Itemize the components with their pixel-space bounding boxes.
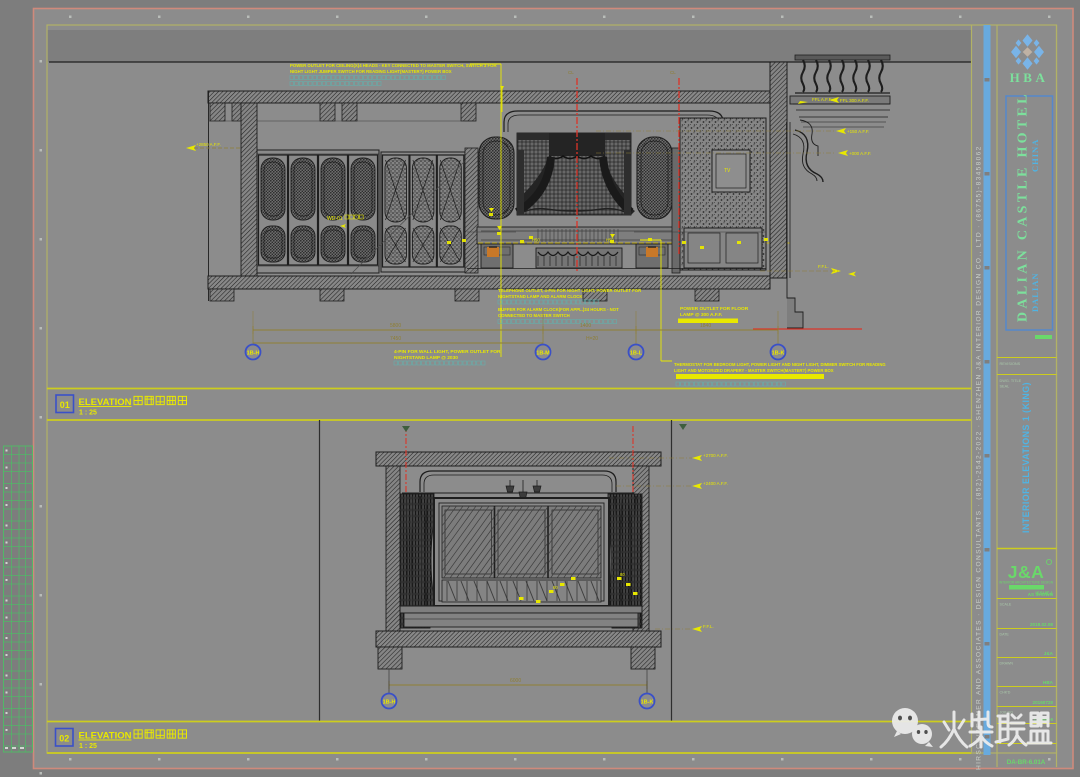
svg-text:REVISIONS: REVISIONS bbox=[1000, 362, 1021, 366]
svg-text:4-PIN FOR WALL LIGHT, POWER OU: 4-PIN FOR WALL LIGHT, POWER OUTLET FOR bbox=[394, 349, 501, 355]
svg-text:6000: 6000 bbox=[510, 678, 521, 684]
svg-text:1 : 25: 1 : 25 bbox=[79, 410, 97, 417]
svg-text:02: 02 bbox=[59, 734, 69, 744]
svg-text:ELEVATION: ELEVATION bbox=[79, 731, 132, 742]
svg-text:FFL 300 A.F.F.: FFL 300 A.F.F. bbox=[840, 98, 869, 103]
svg-text:SCALE: SCALE bbox=[1000, 603, 1012, 607]
svg-text:THERMOSTAT FOR BEDROOM LIGHT,: THERMOSTAT FOR BEDROOM LIGHT, POWER LIGH… bbox=[674, 362, 886, 367]
svg-text:DWG. TITLE: DWG. TITLE bbox=[1000, 379, 1022, 383]
svg-text:1400: 1400 bbox=[580, 323, 591, 329]
svg-text:ELEVATION: ELEVATION bbox=[79, 397, 132, 408]
svg-text:LAMP @ 300 A.F.F.: LAMP @ 300 A.F.F. bbox=[680, 312, 722, 318]
svg-text:20160728: 20160728 bbox=[1033, 700, 1054, 705]
svg-text:1B-M: 1B-M bbox=[536, 351, 550, 357]
svg-text:CONNECTED TO MASTER SWITCH: CONNECTED TO MASTER SWITCH bbox=[498, 313, 570, 318]
svg-text:CHINA: CHINA bbox=[1030, 139, 1040, 172]
svg-text:NIGHTSTAND LAMP AND ALARM CLOC: NIGHTSTAND LAMP AND ALARM CLOCK bbox=[498, 294, 583, 299]
svg-text:1B-L: 1B-L bbox=[630, 351, 643, 357]
svg-text:80: 80 bbox=[620, 572, 625, 577]
svg-text:+000 A.F.F.: +000 A.F.F. bbox=[849, 151, 871, 156]
svg-text:TELEPHONE OUTLET, 4-PIN FOR NI: TELEPHONE OUTLET, 4-PIN FOR NIGHT LIGHT,… bbox=[498, 288, 642, 293]
svg-text:INTERIOR ELEVATIONS 1 (KING): INTERIOR ELEVATIONS 1 (KING) bbox=[1021, 382, 1031, 533]
svg-text:60: 60 bbox=[553, 585, 558, 590]
svg-text:POWER OUTLET FOR FLOOR: POWER OUTLET FOR FLOOR bbox=[680, 306, 749, 312]
svg-text:HBA: HBA bbox=[1043, 680, 1054, 685]
svg-text:DRAWN: DRAWN bbox=[1000, 662, 1014, 666]
svg-text:HIRSCH/BEDNER AND ASSOCIATES ·: HIRSCH/BEDNER AND ASSOCIATES · DESIGN CO… bbox=[976, 145, 983, 770]
svg-text:DALIAN: DALIAN bbox=[1030, 272, 1040, 312]
svg-text:NIGHTSTAND LAMP @ 2030: NIGHTSTAND LAMP @ 2030 bbox=[394, 355, 458, 361]
svg-text:1B-H: 1B-H bbox=[383, 700, 396, 706]
svg-text:J&A: J&A bbox=[1008, 562, 1045, 582]
svg-text:1B-K: 1B-K bbox=[772, 351, 785, 357]
svg-text:F.F.L.: F.F.L. bbox=[818, 264, 829, 269]
svg-text:1B-H: 1B-H bbox=[247, 351, 260, 357]
svg-text:2018.02.08: 2018.02.08 bbox=[1030, 622, 1053, 627]
svg-text:1B-K: 1B-K bbox=[641, 700, 654, 706]
svg-text:F.F.L.: F.F.L. bbox=[703, 624, 714, 629]
svg-text:WD-01: WD-01 bbox=[327, 216, 343, 222]
svg-text:FFL A.F.F.: FFL A.F.F. bbox=[812, 97, 832, 102]
svg-text:POWER OUTLET FOR CEILING(X)4 H: POWER OUTLET FOR CEILING(X)4 HEADS - KEY… bbox=[290, 63, 497, 68]
svg-text:INTERIOR ARCHITECTURE DESIGN: INTERIOR ARCHITECTURE DESIGN bbox=[999, 581, 1054, 585]
svg-text:5800: 5800 bbox=[390, 323, 401, 329]
svg-text:HBA: HBA bbox=[1010, 70, 1049, 85]
svg-text:CL: CL bbox=[670, 70, 676, 75]
svg-text:DALIAN CASTLE HOTEL: DALIAN CASTLE HOTEL bbox=[1016, 91, 1031, 322]
svg-text:+2700 A.F.F.: +2700 A.F.F. bbox=[703, 453, 728, 458]
svg-text:J&A: J&A bbox=[1044, 651, 1054, 656]
svg-text:+2850 A.F.F.: +2850 A.F.F. bbox=[196, 142, 221, 147]
svg-text:LIGHT AND MOTORIZED DRAPERY -: LIGHT AND MOTORIZED DRAPERY - MASTER SWI… bbox=[674, 368, 834, 373]
svg-text:1 : 25: 1 : 25 bbox=[79, 743, 97, 750]
svg-text:1840: 1840 bbox=[700, 323, 711, 329]
svg-text:DATE: DATE bbox=[1000, 633, 1010, 637]
svg-text:7450: 7450 bbox=[390, 336, 401, 342]
svg-text:BUFFER FOR ALARM CLOCK(FOR APP: BUFFER FOR ALARM CLOCK(FOR APPL.)24 HOUR… bbox=[498, 307, 619, 312]
svg-text:ISSUE 1: ISSUE 1 bbox=[1035, 591, 1053, 596]
svg-text:01: 01 bbox=[60, 400, 70, 410]
svg-text:DA-BR-6.01A: DA-BR-6.01A bbox=[1007, 759, 1046, 766]
svg-text:H50: H50 bbox=[532, 238, 540, 243]
svg-text:NIGHT LIGHT JUMPER SWITCH FOR: NIGHT LIGHT JUMPER SWITCH FOR READING LI… bbox=[290, 69, 452, 74]
svg-text:CHK'D: CHK'D bbox=[1000, 691, 1011, 695]
svg-text:+150 A.F.F.: +150 A.F.F. bbox=[847, 129, 869, 134]
svg-text:+2400 A.F.F.: +2400 A.F.F. bbox=[703, 481, 728, 486]
svg-text:SEAL: SEAL bbox=[1000, 385, 1010, 389]
svg-text:TV: TV bbox=[724, 168, 731, 174]
svg-text:H=20: H=20 bbox=[586, 336, 598, 342]
svg-text:CL: CL bbox=[568, 70, 574, 75]
